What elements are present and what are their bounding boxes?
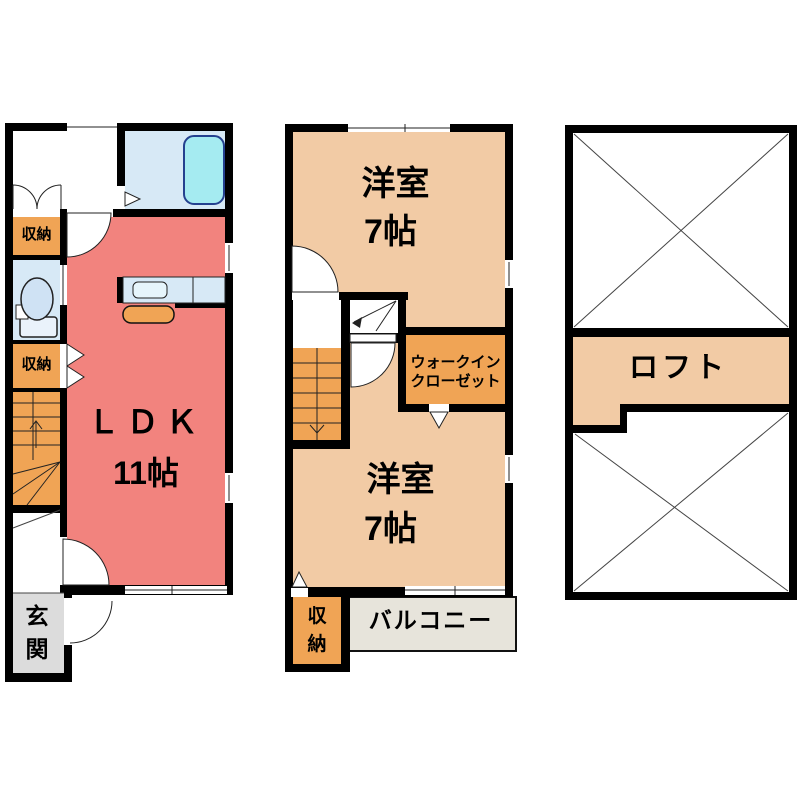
closet2-label: 収納	[13, 356, 60, 373]
room1-label: 洋室	[313, 165, 478, 204]
genkan-label: 玄関	[24, 600, 50, 667]
entrance-door-arc	[70, 601, 112, 643]
room1-size-label: 7帖	[313, 213, 468, 252]
closet1-opening	[13, 209, 60, 217]
room2-door-leaf	[350, 334, 396, 342]
ldk-size-label: 11帖	[65, 455, 227, 492]
room2-size-label: 7帖	[313, 510, 468, 549]
room-ldk	[67, 217, 225, 585]
wic-door-opening	[429, 404, 449, 412]
f2-wall-below-stairs	[286, 440, 350, 449]
entrance-door-opening	[64, 598, 72, 645]
ldk-label: ＬＤＫ	[65, 404, 227, 441]
window-top-washroom	[67, 123, 117, 131]
loft-step-wall-h2	[565, 425, 627, 433]
wic-label-line2: クローゼット	[405, 373, 506, 390]
closet-2f-label: 収納	[306, 603, 328, 658]
closet2-opening	[60, 344, 67, 388]
loft-label: ロフト	[597, 352, 760, 385]
kitchen-table-icon	[123, 306, 174, 323]
balcony-label: バルコニー	[350, 607, 512, 633]
f2-wall-stair-right	[341, 300, 350, 440]
floorplan-drawing	[0, 0, 800, 800]
closet-2f-opening	[291, 588, 308, 597]
window-bottom-room2	[405, 586, 505, 595]
floorplan-canvas: ＬＤＫ 11帖 収納 収納 玄関 洋室 7帖 洋室 7帖 ウォークイン クローゼ…	[0, 0, 800, 800]
closet1-label: 収納	[13, 226, 60, 243]
stair-landing-2	[350, 300, 398, 333]
window-right-room2	[505, 455, 513, 483]
sink-icon	[133, 282, 167, 298]
window-top-room1	[348, 124, 450, 132]
window-bottom-ldk	[125, 586, 227, 594]
bathtub-icon	[184, 136, 224, 204]
room1-door-opening	[292, 292, 339, 300]
wic-label-line1: ウォークイン	[405, 354, 506, 371]
floor1-plan	[5, 123, 233, 682]
window-right-room1	[505, 260, 513, 288]
loft-step-wall-h1	[620, 404, 797, 412]
f2-wall-wic-top	[398, 327, 505, 335]
stair-landing-1	[293, 300, 341, 348]
room-washroom	[13, 131, 117, 209]
window-right-kitchen	[225, 243, 233, 273]
floor2-plan	[285, 124, 516, 672]
room2-label: 洋室	[318, 461, 483, 500]
bathroom-door-opening	[117, 186, 125, 209]
f2-wall-wic-bottom	[398, 404, 505, 412]
room-stairs-1f	[13, 392, 60, 505]
